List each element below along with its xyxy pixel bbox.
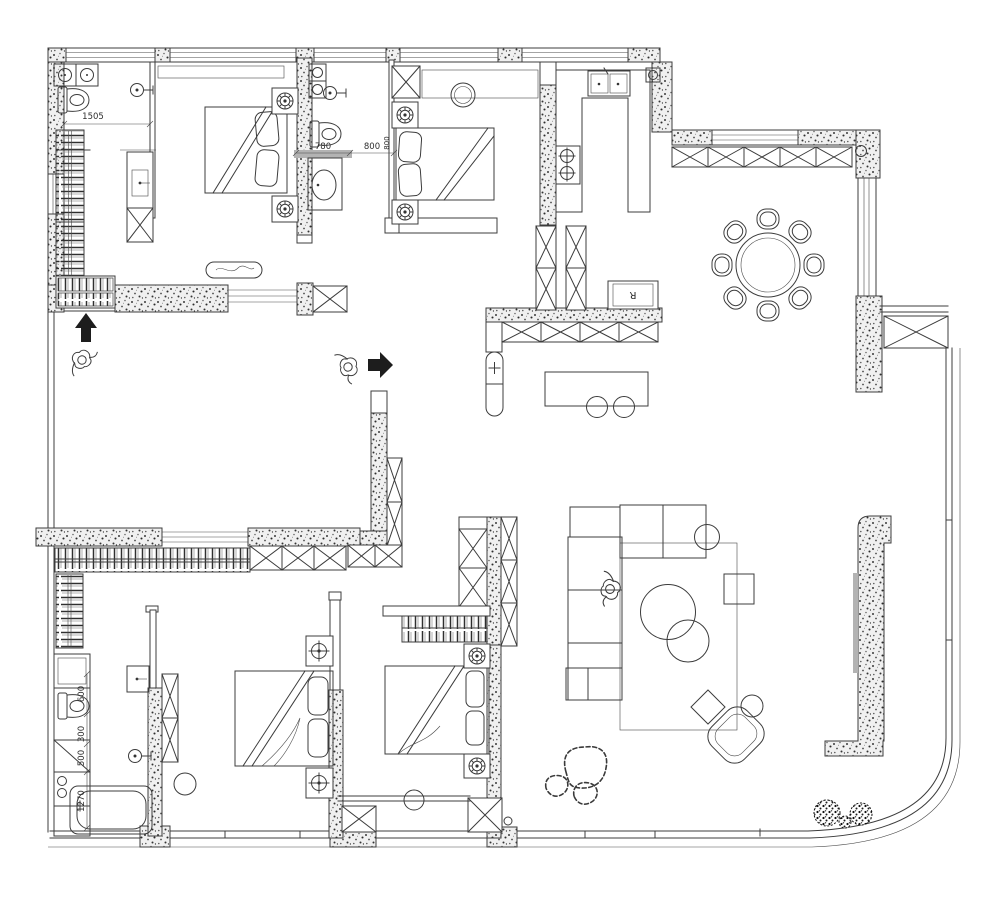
pillow bbox=[398, 131, 422, 162]
refrigerator: R bbox=[608, 281, 658, 309]
coffee-table-large bbox=[641, 585, 696, 640]
kitchen-sink bbox=[588, 68, 630, 96]
side-table-round-small bbox=[741, 695, 763, 717]
wall-pier bbox=[48, 48, 66, 62]
downlight-icon bbox=[397, 107, 413, 123]
person-standing-icon bbox=[67, 346, 103, 376]
wardrobe-vertical-entry bbox=[56, 130, 90, 278]
downlight-icon bbox=[397, 204, 413, 220]
side-table-round bbox=[695, 525, 720, 550]
nightstand bbox=[306, 768, 333, 798]
wall-pier bbox=[155, 48, 170, 62]
dimension-bath1: 1505 bbox=[61, 112, 153, 127]
nightstand bbox=[306, 636, 333, 666]
mirror-cabinet bbox=[127, 666, 149, 692]
person-standing-icon bbox=[335, 353, 358, 385]
wall-bed2-kitchen bbox=[540, 85, 556, 225]
hall-band-cabinets bbox=[250, 545, 402, 570]
wall-pier bbox=[628, 48, 660, 62]
wall-pier bbox=[498, 48, 522, 62]
nightstand bbox=[392, 102, 418, 128]
nightstand bbox=[392, 200, 418, 224]
sofa bbox=[566, 505, 706, 700]
burner-icon bbox=[559, 148, 575, 164]
pillow bbox=[466, 671, 484, 707]
bed-2 bbox=[396, 128, 494, 200]
dining-chair bbox=[757, 301, 779, 321]
figures bbox=[67, 313, 393, 385]
plant-icon bbox=[814, 800, 840, 826]
dining-table-inner bbox=[741, 238, 795, 292]
hallway-cabinet-row bbox=[502, 322, 658, 342]
dining-top-cabinet-row bbox=[672, 146, 867, 168]
bed4-wardrobe bbox=[383, 606, 490, 642]
round-basin-vanity bbox=[308, 158, 342, 210]
side-table-square bbox=[724, 574, 754, 604]
living-room bbox=[546, 505, 891, 804]
dining-table bbox=[736, 233, 800, 297]
downlight-icon bbox=[469, 648, 485, 664]
coffee-table-small bbox=[667, 620, 709, 662]
shoe-cabinet bbox=[56, 276, 115, 308]
wall-bed1-bath2 bbox=[297, 58, 312, 235]
svg-text:300: 300 bbox=[77, 726, 87, 742]
balcony-cabinet bbox=[884, 316, 948, 348]
dining-chair bbox=[804, 254, 824, 276]
bed-4 bbox=[385, 666, 489, 754]
bed-3 bbox=[235, 671, 333, 766]
dining-chair bbox=[712, 254, 732, 276]
wall-left-thin bbox=[48, 312, 54, 832]
console-bench bbox=[206, 262, 262, 278]
wall-center-b bbox=[487, 517, 501, 645]
wall-bath3 bbox=[148, 688, 162, 836]
svg-text:600: 600 bbox=[77, 686, 87, 702]
closet-b-right-column bbox=[501, 517, 517, 646]
sofa-armrest bbox=[566, 668, 588, 700]
burner-icon bbox=[559, 165, 575, 181]
desk bbox=[422, 70, 538, 98]
tv-screen bbox=[853, 573, 858, 673]
wall-center-h2 bbox=[248, 528, 360, 546]
wall-center-a bbox=[371, 413, 387, 546]
bedroom-4 bbox=[338, 644, 490, 810]
entry-arrow-icon bbox=[75, 313, 97, 342]
bed2-corner-cabinet bbox=[392, 66, 420, 98]
wall-kitchen-right bbox=[652, 62, 672, 132]
downlight-icon bbox=[277, 201, 293, 217]
pillow bbox=[254, 149, 279, 187]
bed4-bottom-cabinets bbox=[342, 798, 512, 832]
bed1-closet-x bbox=[127, 208, 153, 242]
svg-text:800: 800 bbox=[364, 142, 380, 152]
nightstand bbox=[464, 644, 490, 668]
kitchen-counter bbox=[556, 70, 650, 212]
plant-icon bbox=[839, 816, 851, 828]
svg-text:800: 800 bbox=[383, 136, 391, 149]
svg-text:780: 780 bbox=[315, 142, 331, 152]
floor-plan-canvas: 1505 780 800 800 bbox=[0, 0, 1000, 898]
wall-center-h1 bbox=[36, 528, 162, 546]
wall-a-cabinet-column bbox=[387, 458, 402, 546]
pillow bbox=[255, 111, 280, 147]
dim-label: 1505 bbox=[82, 112, 104, 122]
stool bbox=[174, 773, 196, 795]
pillow bbox=[308, 677, 328, 715]
dining-chair bbox=[757, 209, 779, 229]
wall-bed3-bed4 bbox=[329, 690, 343, 838]
bar-stool bbox=[614, 397, 635, 418]
exit-arrow-icon bbox=[368, 352, 393, 378]
hall-long-wardrobe bbox=[55, 548, 250, 572]
door-sidelight bbox=[228, 290, 297, 302]
bar-stool bbox=[587, 397, 608, 418]
sofa-chaise bbox=[570, 507, 620, 537]
downlight-icon bbox=[277, 93, 293, 109]
dining-chair bbox=[785, 217, 815, 247]
lounge-chair bbox=[702, 701, 770, 769]
wardrobe-vertical-dressing bbox=[56, 574, 83, 648]
tall-rounded-cabinet bbox=[486, 352, 503, 416]
dining-chair bbox=[785, 283, 815, 313]
pantry-columns bbox=[536, 226, 586, 310]
floor-poufs bbox=[546, 747, 607, 804]
glass-partition bbox=[162, 532, 248, 542]
svg-text:500: 500 bbox=[77, 750, 87, 766]
bath3-side-column bbox=[162, 674, 178, 762]
window-dining-right bbox=[858, 178, 876, 296]
bed1-vanity-column bbox=[120, 150, 156, 208]
downlight-icon bbox=[469, 758, 485, 774]
dimension-bath3: 600 300 500 1270 bbox=[77, 671, 90, 831]
pillow bbox=[398, 163, 422, 196]
kitchen-island bbox=[545, 372, 648, 418]
bedroom-1 bbox=[158, 66, 298, 278]
nightstand bbox=[272, 88, 298, 114]
shower-head-icon bbox=[324, 87, 347, 100]
plant-icon bbox=[850, 803, 872, 825]
dining-area bbox=[712, 209, 824, 321]
tv-feature-wall bbox=[825, 516, 891, 756]
window-ledge bbox=[158, 66, 284, 78]
bedroom-3 bbox=[174, 636, 333, 798]
floor-plan-drawing: 1505 780 800 800 bbox=[0, 0, 1000, 898]
plants bbox=[814, 800, 872, 828]
nightstand bbox=[272, 196, 298, 222]
entry-cabinet-x bbox=[313, 286, 347, 312]
bathroom-3: 600 300 500 1270 bbox=[54, 654, 152, 836]
pillow bbox=[308, 719, 328, 757]
closet-b-left-column bbox=[459, 529, 487, 607]
cooktop bbox=[556, 146, 580, 184]
bed-1 bbox=[205, 107, 287, 193]
nightstand bbox=[464, 754, 490, 778]
refrigerator-label: R bbox=[629, 289, 636, 300]
pillow bbox=[466, 711, 484, 745]
stool bbox=[404, 790, 424, 810]
wall-bath3-thin bbox=[150, 610, 156, 688]
svg-text:1270: 1270 bbox=[77, 790, 87, 812]
